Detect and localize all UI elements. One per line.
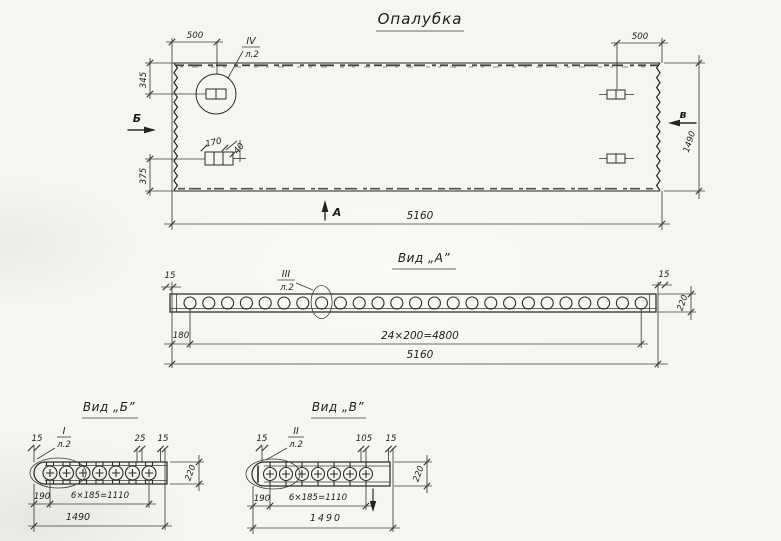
callout-detail-iv: IV л.2	[196, 36, 260, 114]
dim-345-left-upper: 345	[139, 58, 153, 99]
dim-label-left: 15	[257, 434, 268, 444]
dim-1490-right: 1490	[682, 55, 702, 199]
view-title: Вид „А”	[398, 251, 451, 265]
hole-cross	[362, 470, 370, 478]
hole	[466, 297, 478, 309]
view-b: Вид „Б” I л.2 15 25 15	[28, 400, 204, 532]
view-letter: Б	[133, 112, 141, 125]
dim-label: 15	[659, 270, 670, 280]
dim-label-mid: 25	[135, 434, 146, 444]
dim-220-view-b: 220	[170, 455, 204, 491]
view-letter: А	[332, 206, 342, 219]
hole-cross	[346, 470, 354, 478]
bolt-symbols-right	[599, 90, 634, 163]
hole	[485, 297, 497, 309]
arrow-right-icon	[144, 127, 156, 134]
hole	[579, 297, 591, 309]
dim-15-right: 15	[652, 270, 672, 368]
dim-label: 220	[183, 463, 198, 482]
panel-right-zigzag-edge	[657, 63, 660, 190]
hole	[635, 297, 647, 309]
hole-cross	[314, 470, 322, 478]
callout-number: IV	[246, 36, 257, 47]
dim-label-right: 15	[158, 434, 169, 444]
arrow-up-icon	[322, 200, 329, 212]
dim-label: 5160	[407, 210, 434, 222]
hole-cross	[96, 469, 104, 477]
arrow-left-icon	[668, 120, 680, 127]
dim-label: 220	[411, 464, 426, 483]
dim-label-right: 15	[386, 434, 397, 444]
hole	[203, 297, 215, 309]
dim-500-top-right: 500	[611, 32, 668, 46]
callout-number: I	[63, 426, 66, 437]
view-b-top-dims: 15 25 15	[28, 434, 169, 530]
dim-label: 500	[632, 32, 649, 42]
hole	[447, 297, 459, 309]
dim-15-left: 15	[161, 271, 181, 368]
hole	[372, 297, 384, 309]
view-a-lower-dims: 180 24×200=4800 5160	[164, 309, 668, 367]
detail-bolt-lower-left: 170 40	[201, 136, 247, 165]
main-extension-lines	[145, 38, 705, 230]
callout-ii: II л.2	[266, 426, 304, 460]
hole	[184, 297, 196, 309]
dim-label: 1490	[682, 130, 698, 154]
hole	[391, 297, 403, 309]
callout-number: III	[282, 269, 291, 280]
dim-label-total: 1490	[310, 513, 342, 524]
view-arrow-v: в	[668, 108, 696, 126]
callout-ellipse-iii	[311, 286, 332, 319]
main-view-formwork: Опалубка	[128, 10, 705, 230]
dim-label-offset: 190	[34, 492, 51, 502]
dim-label-offset: 180	[173, 331, 190, 341]
hole	[410, 297, 422, 309]
hole-cross	[63, 469, 71, 477]
hole	[504, 297, 516, 309]
hole	[222, 297, 234, 309]
hole	[259, 297, 271, 309]
dim-label-offset: 190	[254, 494, 271, 504]
dim-375-left-lower: 375	[139, 154, 153, 196]
dim-label-spacing: 24×200=4800	[381, 330, 459, 342]
view-title: Вид „Б”	[83, 400, 136, 414]
view-arrow-b: Б	[128, 112, 156, 133]
dim-label-spacing: 6×185=1110	[289, 493, 348, 503]
hole	[316, 297, 328, 309]
panel-outline	[174, 63, 660, 191]
hole	[541, 297, 553, 309]
callout-number: II	[293, 426, 299, 437]
view-letter: в	[680, 108, 687, 121]
dim-label-spacing: 6×185=1110	[71, 491, 130, 501]
view-a-holes	[184, 297, 647, 309]
hole-cross	[330, 470, 338, 478]
drawing-canvas: Опалубка	[0, 0, 781, 541]
dim-label: 375	[139, 168, 149, 184]
hole	[353, 297, 365, 309]
hole	[522, 297, 534, 309]
sheet-title: Опалубка	[378, 10, 463, 28]
callout-sheet: л.2	[288, 440, 303, 450]
view-v-lower-dims: 190 6×185=1110 1490	[247, 481, 400, 534]
hole-cross	[266, 470, 274, 478]
hole-cross	[145, 469, 153, 477]
hole	[297, 297, 309, 309]
hole	[598, 297, 610, 309]
hole	[240, 297, 252, 309]
dim-label-total: 1490	[66, 512, 90, 523]
dim-5160-bottom: 5160	[164, 210, 670, 227]
hole-cross	[129, 469, 137, 477]
scanned-drawing-sheet: Опалубка	[0, 0, 781, 541]
dim-label: 15	[165, 271, 176, 281]
hole-cross	[282, 470, 290, 478]
callout-sheet: л.2	[56, 440, 71, 450]
callout-sheet: л.2	[279, 283, 294, 293]
hole-cross	[46, 469, 54, 477]
hole	[334, 297, 346, 309]
view-arrow-a: А	[322, 200, 342, 220]
dim-label-left: 15	[32, 434, 43, 444]
panel-left-zigzag-edge	[174, 63, 177, 190]
dim-label-total: 5160	[407, 349, 434, 361]
dim-label-mid: 105	[356, 434, 372, 444]
dim-label: 345	[139, 72, 149, 88]
callout-sheet: л.2	[244, 50, 259, 60]
view-b-lower-dims: 190 6×185=1110 1490	[28, 481, 172, 532]
hole-cross	[112, 469, 120, 477]
dim-label: 500	[187, 31, 204, 41]
hole	[616, 297, 628, 309]
dim-500-top-left: 500	[166, 31, 223, 45]
view-a: Вид „А” III л.2 15 15	[161, 251, 696, 368]
hole	[278, 297, 290, 309]
arrow-down-icon	[370, 501, 376, 512]
dim-220-view-v: 220	[394, 455, 432, 493]
hole	[428, 297, 440, 309]
hole	[560, 297, 572, 309]
view-v: Вид „В” II л.2 15 105 15	[246, 400, 432, 534]
view-title: Вид „В”	[312, 400, 365, 414]
dim-220-view-a: 220	[658, 286, 696, 320]
dim-label: 170	[205, 136, 224, 149]
callout-iii: III л.2	[277, 269, 313, 293]
